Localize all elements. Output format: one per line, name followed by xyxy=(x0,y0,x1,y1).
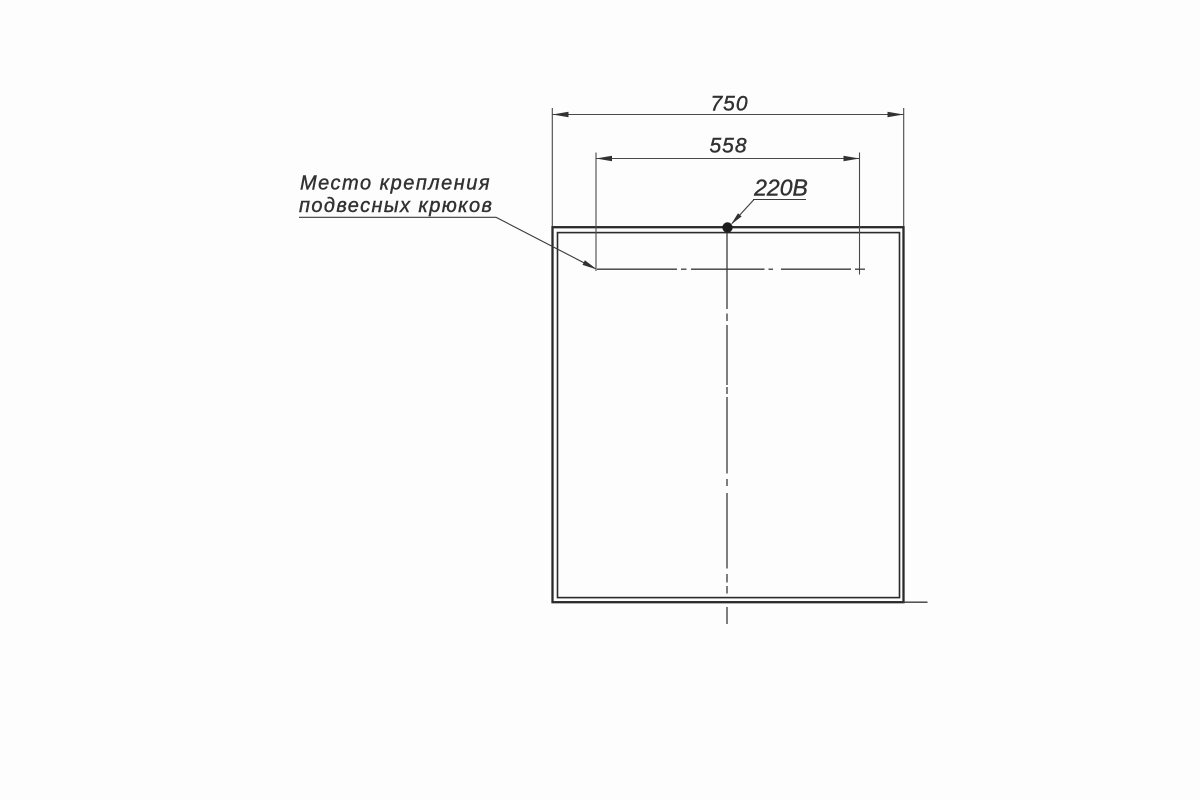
svg-text:558: 558 xyxy=(709,135,747,158)
svg-text:Место крепления: Место крепления xyxy=(300,173,491,195)
svg-text:подвесных крюков: подвесных крюков xyxy=(299,195,493,217)
svg-text:750: 750 xyxy=(710,93,748,116)
svg-text:220В: 220В xyxy=(753,175,808,201)
